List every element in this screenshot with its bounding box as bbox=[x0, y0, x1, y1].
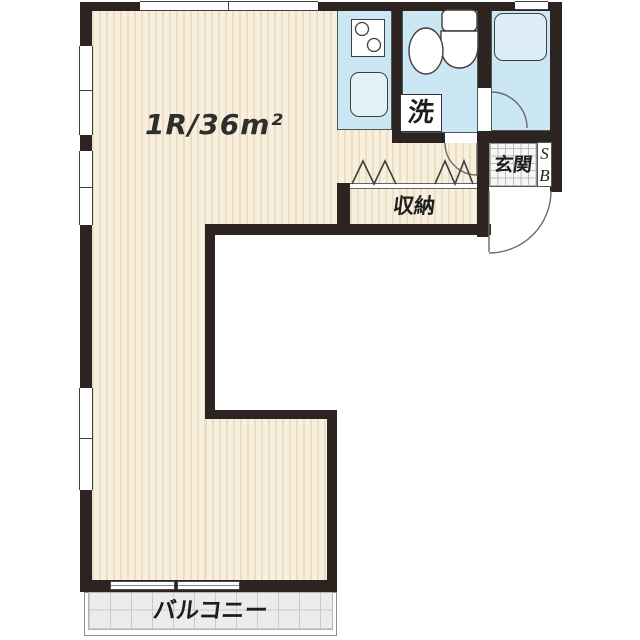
entrance-tile: 玄関 bbox=[489, 143, 537, 187]
wall-notch-bottom bbox=[205, 410, 337, 419]
balcony: バルコニー bbox=[88, 592, 333, 630]
kitchen-sink-icon bbox=[350, 72, 388, 117]
toilet-door-opening bbox=[445, 133, 477, 143]
balcony-sliding-door-left bbox=[110, 581, 175, 590]
floor-plan: 収納 洗 玄関 S B バルコニー 1R/36m² bbox=[0, 0, 640, 640]
window-left-lower bbox=[79, 388, 93, 490]
hallway-floor bbox=[392, 143, 477, 186]
balcony-sliding-door-right bbox=[177, 581, 240, 590]
shoe-box-letter-b: B bbox=[539, 167, 549, 184]
stove-icon bbox=[351, 19, 385, 57]
bathtub-icon bbox=[494, 13, 547, 61]
window-top-bath bbox=[515, 1, 548, 10]
washing-machine-space: 洗 bbox=[400, 94, 442, 132]
wall-notch-top bbox=[205, 224, 491, 235]
closet-floor: 収納 bbox=[350, 189, 477, 224]
closet-label: 収納 bbox=[391, 196, 436, 217]
balcony-label: バルコニー bbox=[152, 600, 269, 623]
wall-entrance-left bbox=[477, 133, 489, 237]
wall-toilet-bath-divider bbox=[478, 2, 491, 88]
lower-room-floor bbox=[205, 419, 327, 580]
shoe-box-letter-s: S bbox=[540, 145, 549, 162]
laundry-label: 洗 bbox=[406, 100, 435, 126]
wall-notch-left bbox=[205, 224, 215, 419]
closet-front-track bbox=[350, 183, 477, 189]
wall-toilet-bottom bbox=[392, 133, 445, 143]
corridor-floor bbox=[92, 224, 205, 580]
room-area-label: 1R/36m² bbox=[145, 108, 284, 141]
entrance-label: 玄関 bbox=[493, 156, 533, 175]
shoe-box: S B bbox=[537, 142, 552, 187]
entrance-door-arc bbox=[489, 191, 551, 253]
window-left-upper bbox=[79, 46, 93, 135]
wall-lower-right bbox=[327, 410, 337, 592]
window-top-main bbox=[140, 1, 318, 11]
window-left-middle bbox=[79, 151, 93, 225]
